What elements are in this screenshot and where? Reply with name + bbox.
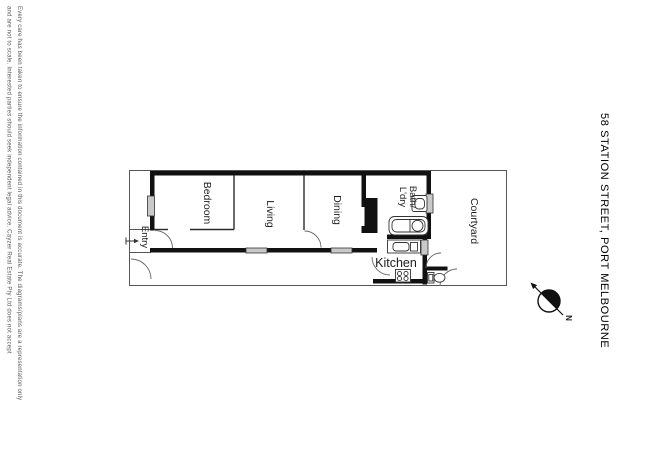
window-kitchen-courtyard xyxy=(421,240,428,255)
floor-plan-page: Every care has been taken to ensure the … xyxy=(0,0,645,455)
kitchen-drainer xyxy=(411,243,418,252)
floor-plan-drawing: Entry Bedroom Living Dining Bath/ L'dry … xyxy=(0,0,645,455)
window-dining-rear xyxy=(331,248,352,253)
compass-north-label: N xyxy=(564,315,573,321)
burner-2 xyxy=(404,271,408,275)
entry-arrow-icon xyxy=(126,238,139,245)
fireplace-opening xyxy=(362,207,365,226)
toilet-bowl-icon xyxy=(434,273,445,282)
kitchen-sink-icon xyxy=(393,243,409,252)
wall-front xyxy=(150,171,431,176)
burner-1 xyxy=(397,271,401,275)
wall-dining-bath xyxy=(362,171,367,198)
room-label-laundry: L'dry xyxy=(397,187,408,208)
property-boundary xyxy=(130,171,507,286)
burner-4 xyxy=(404,276,408,280)
bathtub-drain-icon xyxy=(412,220,423,231)
compass-north-icon: N xyxy=(531,283,574,322)
burner-3 xyxy=(397,276,401,280)
wall-bath-right-upper xyxy=(427,171,432,194)
gate-swing-arc xyxy=(131,259,151,279)
toilet-cistern-inner xyxy=(429,275,433,282)
window-bedroom-side xyxy=(148,196,155,216)
dining-door-arc xyxy=(305,231,322,248)
room-label-dining: Dining xyxy=(331,195,343,225)
window-living-rear xyxy=(246,248,267,253)
room-label-living: Living xyxy=(264,200,276,228)
room-label-bedroom: Bedroom xyxy=(201,182,213,225)
front-door-arc xyxy=(155,231,173,249)
wall-left-upper xyxy=(150,171,155,196)
room-label-entry: Entry xyxy=(139,226,150,248)
room-label-courtyard: Courtyard xyxy=(468,198,480,244)
room-label-kitchen: Kitchen xyxy=(375,256,417,270)
